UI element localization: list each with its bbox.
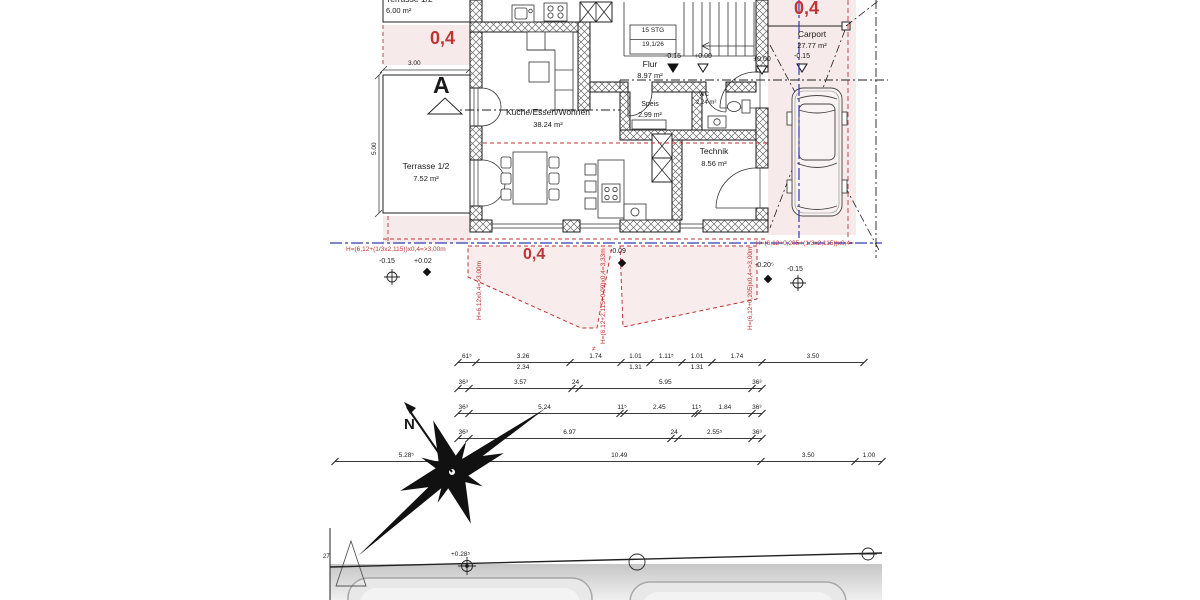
factor-carport-label: 0,4 — [794, 0, 819, 19]
room-area-kitchen: 38.24 m² — [486, 121, 610, 130]
room-label-flur: Flur — [628, 60, 672, 70]
room-area-flur: 8.97 m² — [622, 72, 678, 81]
room-label-kitchen: Küche/Essen/Wohnen — [486, 108, 610, 118]
floorplan-sheet: 61⁵3.262.341.741.011.311.11⁵1.011.311.74… — [0, 0, 1200, 600]
parcel-number: 27 — [323, 554, 330, 561]
neq-mark: ≠ — [592, 346, 596, 354]
terrace-top-area: 6.00 m² — [386, 7, 411, 16]
spot-level-r2: -0.15 — [787, 266, 803, 274]
room-area-technik: 8.56 m² — [678, 160, 750, 169]
factor-band-label: 0,4 — [430, 28, 455, 49]
height-formula-right-h: H=(6,12+0,205+(1/3x2,115))x0,4= — [756, 240, 854, 247]
height-formula-right-v: H=(6,12+0,205)x0,4=>3,00m — [747, 247, 754, 330]
height-formula-left-h: H=(6,12+(1/3x2,115))x0,4=>3,00m — [346, 246, 446, 253]
room-area-carport: 27.77 m² — [770, 42, 854, 51]
room-label-wc: WC — [699, 92, 709, 99]
stairs-count-label: 15 STG — [633, 27, 673, 34]
spot-level-street: +0.28⁵ — [451, 551, 470, 558]
north-label: N — [404, 416, 415, 433]
stairs-ratio-label: 19,1/26 — [633, 41, 673, 48]
room-label-technik: Technik — [678, 147, 750, 157]
spot-level-m1: -0.09 — [610, 248, 626, 256]
height-formula-left-v: H=6,12x0,4=>3,00m — [476, 261, 483, 320]
spot-level-r1: -0.20⁵ — [755, 262, 774, 270]
room-area-speis: 2.99 m² — [626, 112, 674, 120]
spot-level-l2: +0.02 — [414, 258, 432, 266]
room-area-wc: 2.24 m² — [696, 100, 716, 107]
terrace-left-label: Terrasse 1/2 — [390, 162, 462, 172]
factor-zone-label: 0,4 — [523, 246, 545, 264]
terrace-left-area: 7.52 m² — [390, 175, 462, 184]
terrace-height-dim: 5.00 — [371, 142, 378, 155]
room-label-speis: Speis — [630, 101, 670, 109]
spot-level-l1: -0.15 — [379, 258, 395, 266]
room-label-carport: Carport — [770, 30, 854, 40]
level-entry-zero: ±0.00 — [744, 56, 780, 64]
level-hall-zero: +0.00 — [685, 53, 721, 61]
section-marker-label: A — [433, 72, 450, 98]
height-formula-mid-v: H=(6,12+2,115+0,09)x0,4=3,33m — [600, 248, 607, 344]
terrace-top-label: Terrasse 1/2 — [386, 0, 433, 5]
terrace-width-dim: 3.00 — [408, 60, 421, 67]
level-carport-minus: -0.15 — [784, 53, 820, 61]
